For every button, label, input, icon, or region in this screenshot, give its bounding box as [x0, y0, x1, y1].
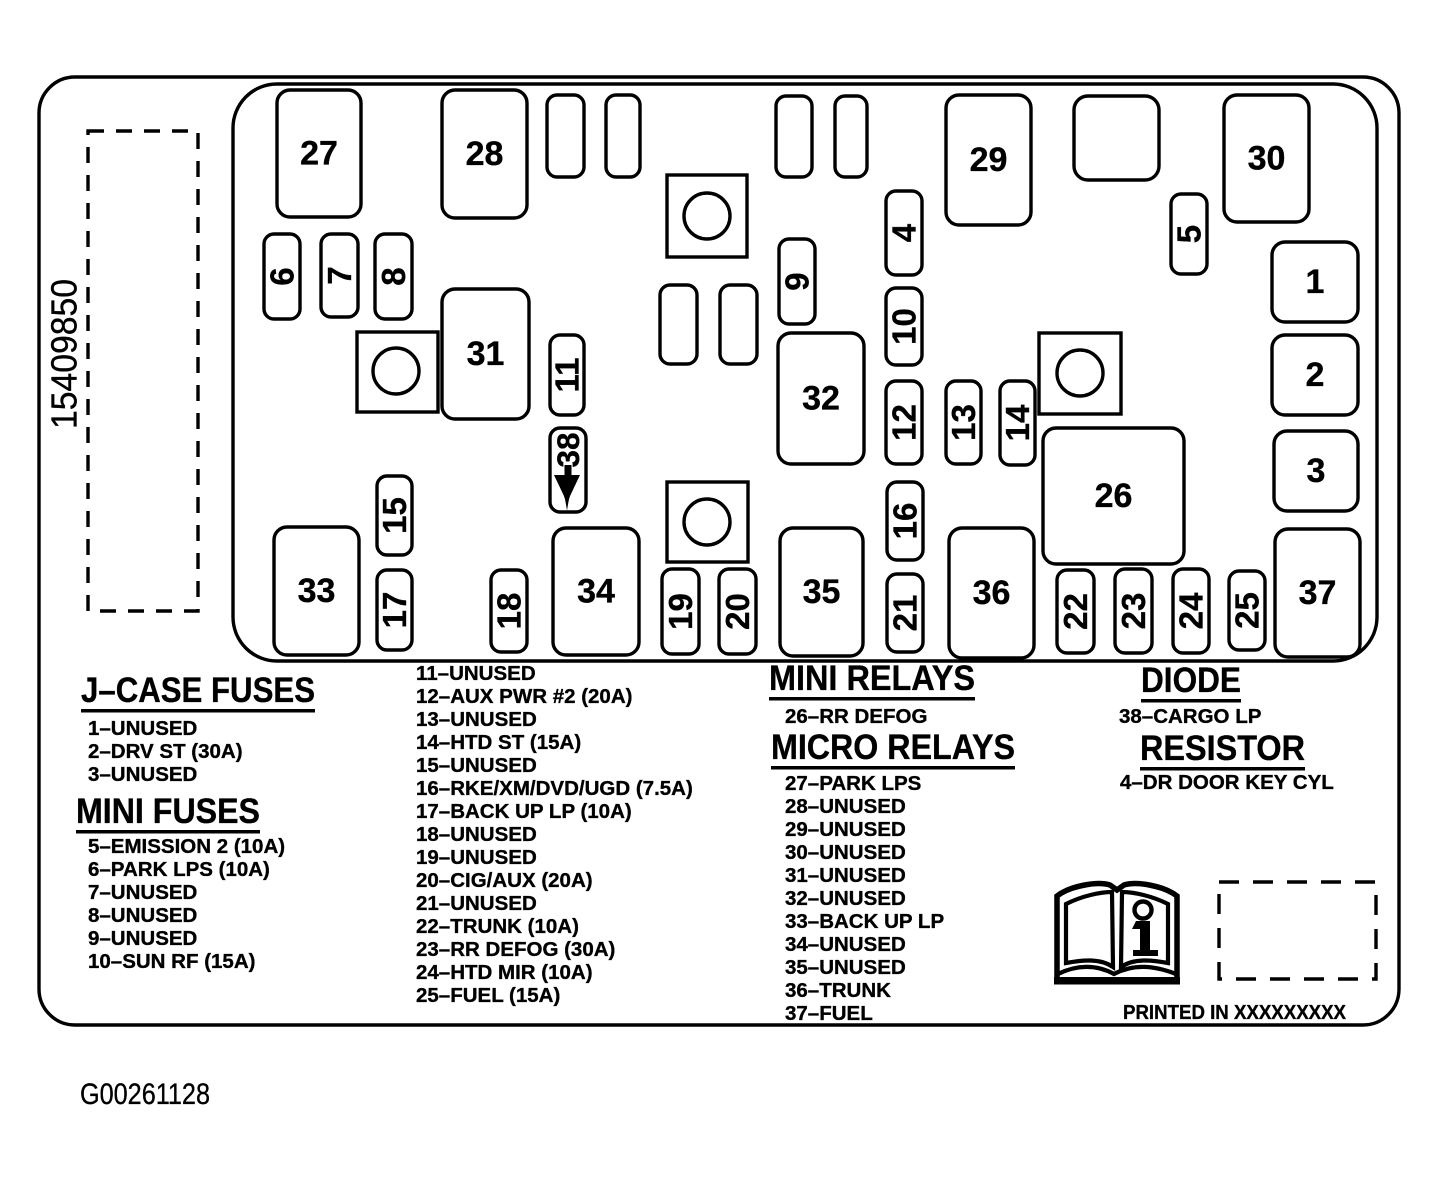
svg-text:23–RR DEFOG (30A): 23–RR DEFOG (30A) — [416, 938, 615, 961]
svg-text:18: 18 — [491, 593, 528, 630]
svg-text:DIODE: DIODE — [1141, 661, 1241, 700]
svg-text:9: 9 — [779, 272, 816, 290]
svg-text:1: 1 — [1306, 263, 1325, 301]
svg-text:21–UNUSED: 21–UNUSED — [416, 892, 537, 915]
svg-text:25–FUEL (15A): 25–FUEL (15A) — [416, 984, 560, 1007]
svg-text:4: 4 — [886, 223, 923, 242]
svg-text:30: 30 — [1248, 140, 1286, 178]
svg-text:33–BACK UP LP: 33–BACK UP LP — [785, 910, 944, 933]
svg-text:19–UNUSED: 19–UNUSED — [416, 846, 537, 869]
svg-text:6: 6 — [264, 267, 301, 285]
svg-text:20–CIG/AUX (20A): 20–CIG/AUX (20A) — [416, 869, 593, 892]
svg-text:23: 23 — [1115, 593, 1152, 630]
svg-text:15–UNUSED: 15–UNUSED — [416, 754, 537, 777]
svg-text:MICRO RELAYS: MICRO RELAYS — [771, 728, 1015, 767]
svg-text:17: 17 — [376, 592, 413, 629]
svg-text:14–HTD ST (15A): 14–HTD ST (15A) — [416, 731, 581, 754]
svg-text:11–UNUSED: 11–UNUSED — [416, 662, 536, 685]
svg-text:10–SUN RF (15A): 10–SUN RF (15A) — [88, 950, 255, 973]
svg-text:36–TRUNK: 36–TRUNK — [785, 979, 891, 1002]
svg-text:7: 7 — [321, 266, 358, 284]
svg-text:14: 14 — [999, 404, 1036, 441]
svg-text:6–PARK LPS (10A): 6–PARK LPS (10A) — [88, 858, 270, 881]
svg-text:31: 31 — [467, 335, 505, 373]
svg-text:15409850: 15409850 — [44, 279, 85, 429]
svg-text:8: 8 — [375, 267, 412, 285]
svg-text:26: 26 — [1095, 477, 1133, 515]
svg-text:3–UNUSED: 3–UNUSED — [88, 763, 197, 786]
svg-text:27–PARK LPS: 27–PARK LPS — [785, 772, 921, 795]
svg-text:35–UNUSED: 35–UNUSED — [785, 956, 906, 979]
svg-text:29–UNUSED: 29–UNUSED — [785, 818, 906, 841]
svg-text:28: 28 — [466, 135, 504, 173]
svg-text:26–RR DEFOG: 26–RR DEFOG — [785, 705, 927, 728]
svg-text:24–HTD MIR (10A): 24–HTD MIR (10A) — [416, 961, 593, 984]
svg-text:3: 3 — [1307, 452, 1326, 490]
svg-text:17–BACK UP LP (10A): 17–BACK UP LP (10A) — [416, 800, 632, 823]
svg-text:16: 16 — [887, 503, 924, 540]
svg-text:37–FUEL: 37–FUEL — [785, 1002, 873, 1025]
svg-text:38–CARGO LP: 38–CARGO LP — [1119, 705, 1261, 728]
svg-text:2–DRV ST (30A): 2–DRV ST (30A) — [88, 740, 243, 763]
svg-text:35: 35 — [803, 573, 841, 611]
svg-text:22: 22 — [1057, 593, 1094, 630]
svg-text:PRINTED IN XXXXXXXXX: PRINTED IN XXXXXXXXX — [1123, 1001, 1346, 1024]
svg-text:4–DR DOOR KEY CYL: 4–DR DOOR KEY CYL — [1120, 771, 1334, 794]
svg-text:32: 32 — [802, 380, 840, 418]
svg-text:18–UNUSED: 18–UNUSED — [416, 823, 537, 846]
svg-text:34: 34 — [577, 573, 615, 611]
svg-text:37: 37 — [1299, 574, 1337, 612]
svg-text:5: 5 — [1171, 225, 1208, 243]
svg-text:24: 24 — [1173, 592, 1210, 629]
svg-text:9–UNUSED: 9–UNUSED — [88, 927, 197, 950]
svg-text:G00261128: G00261128 — [80, 1078, 210, 1111]
svg-text:12: 12 — [886, 404, 923, 441]
svg-text:5–EMISSION 2 (10A): 5–EMISSION 2 (10A) — [88, 835, 285, 858]
svg-text:21: 21 — [887, 595, 924, 632]
svg-text:31–UNUSED: 31–UNUSED — [785, 864, 906, 887]
svg-text:32–UNUSED: 32–UNUSED — [785, 887, 906, 910]
svg-text:27: 27 — [300, 135, 338, 173]
svg-text:1–UNUSED: 1–UNUSED — [88, 717, 197, 740]
svg-text:2: 2 — [1306, 356, 1325, 394]
svg-text:MINI FUSES: MINI FUSES — [76, 792, 260, 831]
svg-text:13–UNUSED: 13–UNUSED — [416, 708, 537, 731]
svg-text:RESISTOR: RESISTOR — [1140, 729, 1305, 768]
svg-text:29: 29 — [970, 141, 1008, 179]
svg-text:33: 33 — [298, 572, 336, 610]
svg-text:J–CASE FUSES: J–CASE FUSES — [81, 671, 315, 710]
svg-text:15: 15 — [376, 497, 413, 534]
svg-text:10: 10 — [886, 308, 923, 345]
svg-text:38: 38 — [550, 432, 586, 467]
svg-text:16–RKE/XM/DVD/UGD (7.5A): 16–RKE/XM/DVD/UGD (7.5A) — [416, 777, 693, 800]
svg-text:20: 20 — [719, 593, 756, 630]
svg-text:8–UNUSED: 8–UNUSED — [88, 904, 197, 927]
svg-text:12–AUX PWR #2 (20A): 12–AUX PWR #2 (20A) — [416, 685, 632, 708]
svg-text:30–UNUSED: 30–UNUSED — [785, 841, 906, 864]
svg-text:34–UNUSED: 34–UNUSED — [785, 933, 906, 956]
svg-text:22–TRUNK (10A): 22–TRUNK (10A) — [416, 915, 579, 938]
svg-text:11: 11 — [549, 358, 586, 393]
svg-text:19: 19 — [662, 593, 699, 630]
svg-text:25: 25 — [1229, 592, 1266, 629]
svg-text:7–UNUSED: 7–UNUSED — [88, 881, 197, 904]
svg-text:28–UNUSED: 28–UNUSED — [785, 795, 906, 818]
svg-text:MINI RELAYS: MINI RELAYS — [769, 659, 975, 698]
svg-text:13: 13 — [945, 404, 982, 441]
svg-text:36: 36 — [973, 574, 1011, 612]
